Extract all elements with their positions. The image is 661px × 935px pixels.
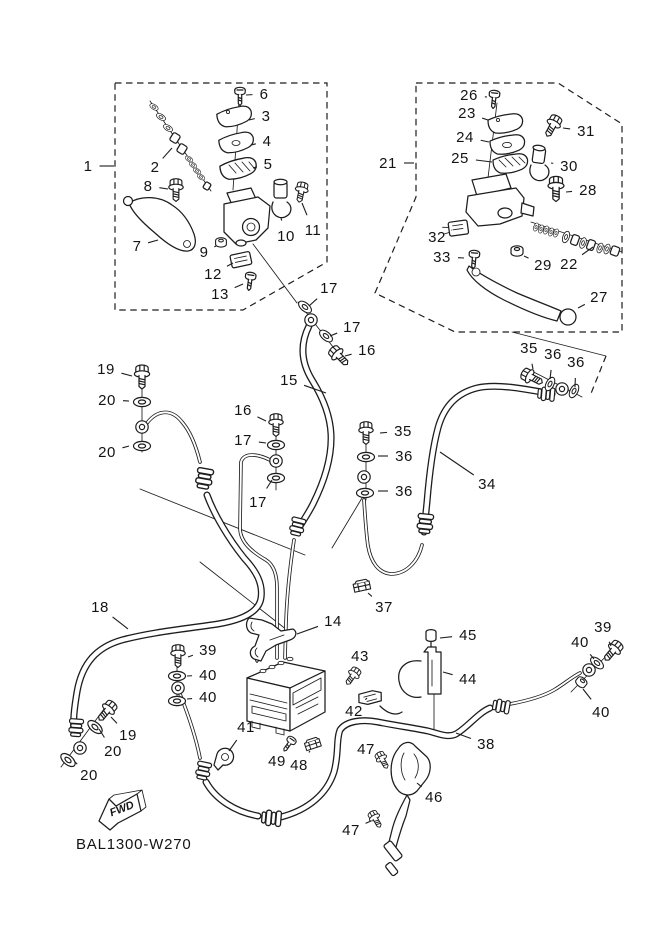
callout-leader-17: [330, 333, 337, 336]
hose-clamp-41: [214, 748, 234, 770]
callout-36[interactable]: 36: [395, 483, 413, 500]
brake-hose-34: [358, 383, 568, 574]
banjo-eye: [74, 742, 86, 754]
callout-leader-47: [379, 758, 380, 759]
callout-leader-25: [476, 160, 492, 162]
callout-35[interactable]: 35: [394, 423, 412, 440]
callout-17[interactable]: 17: [234, 432, 252, 449]
callout-leader-18: [113, 617, 128, 629]
piston-kit-22: [532, 222, 620, 256]
callout-21[interactable]: 21: [379, 155, 397, 172]
callout-7[interactable]: 7: [133, 238, 142, 255]
callout-12[interactable]: 12: [204, 266, 222, 283]
hose-coupling: [261, 810, 281, 827]
hose-coupling: [195, 761, 212, 781]
callout-leader-20: [122, 446, 129, 448]
callout-16[interactable]: 16: [234, 402, 252, 419]
callout-leader-34: [440, 452, 474, 475]
banjo-eye: [305, 314, 317, 326]
washer-36: [357, 488, 374, 497]
hose-clamp-37: [353, 579, 371, 592]
washer-17: [296, 299, 313, 315]
callout-leader-41: [229, 740, 237, 751]
bracket-44: [399, 647, 441, 697]
callout-34[interactable]: 34: [478, 476, 496, 493]
callout-leader-31: [563, 128, 570, 129]
banjo-bolt-39: [600, 638, 626, 665]
flare-nut-40: [574, 675, 588, 689]
bolt-47-lower: [366, 809, 385, 830]
master-cylinder-body-left: [224, 188, 270, 246]
callout-27[interactable]: 27: [590, 289, 608, 306]
callout-leader-40: [583, 689, 591, 699]
callout-leader-45: [440, 637, 452, 638]
callout-leader-24: [481, 140, 489, 142]
washer-36: [567, 383, 581, 399]
callout-46[interactable]: 46: [425, 789, 443, 806]
banjo-eye: [172, 682, 184, 694]
callout-leader-8: [159, 188, 168, 189]
callout-36[interactable]: 36: [544, 346, 562, 363]
callout-37[interactable]: 37: [375, 599, 393, 616]
callout-23[interactable]: 23: [458, 105, 476, 122]
hose-coupling: [195, 467, 214, 490]
callout-11[interactable]: 11: [305, 222, 322, 239]
callout-leader-27: [578, 304, 585, 308]
clamp-bolt-31: [541, 113, 564, 140]
callout-47[interactable]: 47: [342, 822, 360, 839]
brake-hose-18: [69, 412, 262, 754]
callout-20[interactable]: 20: [98, 444, 116, 461]
callout-36[interactable]: 36: [395, 448, 413, 465]
bolt-47-upper: [373, 750, 392, 771]
callout-leader-14: [297, 626, 318, 634]
banjo-group-35-36-mid: [357, 422, 375, 498]
callout-43[interactable]: 43: [351, 648, 369, 665]
callout-22[interactable]: 22: [560, 256, 578, 273]
hose-coupling: [416, 513, 433, 534]
callout-leader-29: [524, 256, 529, 258]
callout-26[interactable]: 26: [460, 87, 478, 104]
cap-plate-4: [218, 130, 256, 156]
hose-clamp-48: [304, 737, 322, 751]
callout-9[interactable]: 9: [200, 244, 209, 261]
banjo-bolt-39: [171, 645, 185, 668]
callout-40[interactable]: 40: [571, 634, 589, 651]
clamp-bolt-11: [293, 181, 310, 204]
callout-39[interactable]: 39: [594, 619, 612, 636]
callout-leader-28: [566, 191, 572, 192]
parts-diagram-page: FWD BAL1300-W270 12345678910111213171716…: [0, 0, 661, 935]
callout-33[interactable]: 33: [433, 249, 451, 266]
callout-17[interactable]: 17: [343, 319, 361, 336]
banjo-eye: [556, 383, 568, 395]
banjo-bolt-16: [326, 343, 352, 369]
bolt-49: [280, 735, 297, 754]
banjo-bolt-19: [94, 698, 120, 725]
banjo-bolt-35: [359, 422, 373, 445]
banjo-bolt-16: [269, 414, 283, 437]
callout-leader-19: [121, 373, 132, 376]
washer-40: [169, 696, 186, 705]
callout-leader-16: [257, 417, 266, 421]
washer-40: [169, 671, 186, 680]
callout-19[interactable]: 19: [119, 727, 137, 744]
callout-32[interactable]: 32: [428, 229, 446, 246]
callout-leader-17: [259, 442, 266, 443]
reservoir-cap-23: [487, 112, 524, 135]
cap-plate-24: [489, 133, 526, 156]
callout-leader-9: [214, 246, 216, 247]
washer-17: [268, 440, 285, 449]
hose-coupling: [69, 719, 84, 737]
callout-13[interactable]: 13: [211, 286, 229, 303]
callout-leader-23: [482, 118, 488, 120]
callout-48[interactable]: 48: [290, 757, 308, 774]
bolt-43: [342, 665, 363, 688]
master-cylinder-body-right: [466, 174, 534, 226]
callout-leader-2: [163, 148, 172, 158]
banjo-eye: [270, 455, 282, 467]
callout-15[interactable]: 15: [280, 372, 298, 389]
bracket-42: [357, 689, 402, 714]
callout-19[interactable]: 19: [97, 361, 115, 378]
callout-24[interactable]: 24: [456, 129, 474, 146]
callout-28[interactable]: 28: [579, 182, 597, 199]
callout-2[interactable]: 2: [151, 159, 160, 176]
callout-39[interactable]: 39: [199, 642, 217, 659]
callout-35[interactable]: 35: [520, 340, 538, 357]
callout-leader-19: [111, 717, 117, 723]
callout-leader-17: [309, 299, 317, 306]
hose-coupling: [492, 698, 511, 714]
callout-14[interactable]: 14: [324, 613, 342, 630]
callout-leader-35: [532, 364, 533, 369]
banjo-group-39-40-left: [169, 645, 186, 706]
callout-36[interactable]: 36: [567, 354, 585, 371]
banjo-eye: [136, 421, 148, 433]
callout-42[interactable]: 42: [345, 703, 363, 720]
callout-17[interactable]: 17: [320, 280, 338, 297]
callout-44[interactable]: 44: [459, 671, 477, 688]
callout-41[interactable]: 41: [237, 719, 255, 736]
callout-20[interactable]: 20: [80, 767, 98, 784]
callout-47[interactable]: 47: [357, 741, 375, 758]
callout-40[interactable]: 40: [199, 689, 217, 706]
brake-hose-38: [172, 664, 595, 827]
callout-leader-10: [281, 218, 282, 221]
callout-38[interactable]: 38: [477, 736, 495, 753]
reservoir-cap-screw-6: [235, 87, 245, 105]
brake-switch-12: [230, 251, 252, 268]
nut-29: [511, 246, 523, 256]
callout-leader-47: [366, 821, 371, 823]
callout-16[interactable]: 16: [358, 342, 376, 359]
callout-18[interactable]: 18: [91, 599, 109, 616]
hose-coupling: [288, 517, 306, 537]
callout-1[interactable]: 1: [84, 158, 93, 175]
piston-kit-2: [149, 102, 212, 190]
banjo-eye: [358, 471, 370, 483]
callout-45[interactable]: 45: [459, 627, 477, 644]
sensor-45: [426, 630, 436, 648]
callout-leader-7: [148, 240, 158, 243]
callout-40[interactable]: 40: [199, 667, 217, 684]
callout-5[interactable]: 5: [264, 156, 273, 173]
callout-leader-44: [443, 672, 453, 675]
callout-leader-16: [345, 354, 352, 356]
callout-10[interactable]: 10: [277, 228, 295, 245]
callout-leader-48: [309, 751, 310, 752]
bolt-28: [548, 176, 564, 201]
fwd-direction-arrow: FWD: [99, 790, 146, 830]
callout-17[interactable]: 17: [249, 494, 267, 511]
callout-8[interactable]: 8: [144, 178, 153, 195]
callout-3[interactable]: 3: [262, 108, 271, 125]
box-flap-dash: [590, 356, 606, 396]
washer-20: [134, 441, 151, 450]
callout-29[interactable]: 29: [534, 257, 552, 274]
callout-leader-39: [188, 655, 193, 657]
abs-modulator-unit: [247, 648, 325, 735]
callout-20[interactable]: 20: [98, 392, 116, 409]
callout-31[interactable]: 31: [577, 123, 595, 140]
callout-20[interactable]: 20: [104, 743, 122, 760]
banjo-bolt-19: [134, 365, 149, 389]
wire-guide: [399, 661, 421, 698]
pivot-bolt-8: [169, 179, 183, 202]
reservoir-cap-screw-26: [488, 90, 500, 109]
washer-36: [358, 452, 375, 461]
callout-leader-35: [380, 432, 387, 433]
brake-switch-32: [442, 220, 469, 237]
switch-screw-13: [244, 272, 257, 291]
parts-diagram-svg: FWD BAL1300-W270 12345678910111213171716…: [0, 0, 661, 935]
washer-17: [268, 473, 285, 482]
washer-20: [134, 397, 151, 406]
callout-6[interactable]: 6: [260, 86, 269, 103]
callout-30[interactable]: 30: [560, 158, 578, 175]
mirror-clamp-30: [530, 145, 549, 181]
reservoir-cap-3: [216, 104, 254, 130]
callout-25[interactable]: 25: [451, 150, 469, 167]
callout-leader-13: [235, 284, 243, 288]
diaphragm-5: [219, 155, 259, 182]
diagram-code: BAL1300-W270: [76, 836, 192, 853]
callout-4[interactable]: 4: [263, 133, 272, 150]
nut-9: [216, 238, 227, 247]
callout-49[interactable]: 49: [268, 753, 286, 770]
callout-40[interactable]: 40: [592, 704, 610, 721]
bracket-46: [383, 742, 430, 876]
mirror-clamp-10: [272, 179, 291, 217]
abs-bracket-14: [247, 618, 296, 661]
brake-lever-27: [467, 266, 576, 325]
callout-leader-11: [302, 203, 307, 215]
callout-leader-37: [368, 593, 372, 596]
